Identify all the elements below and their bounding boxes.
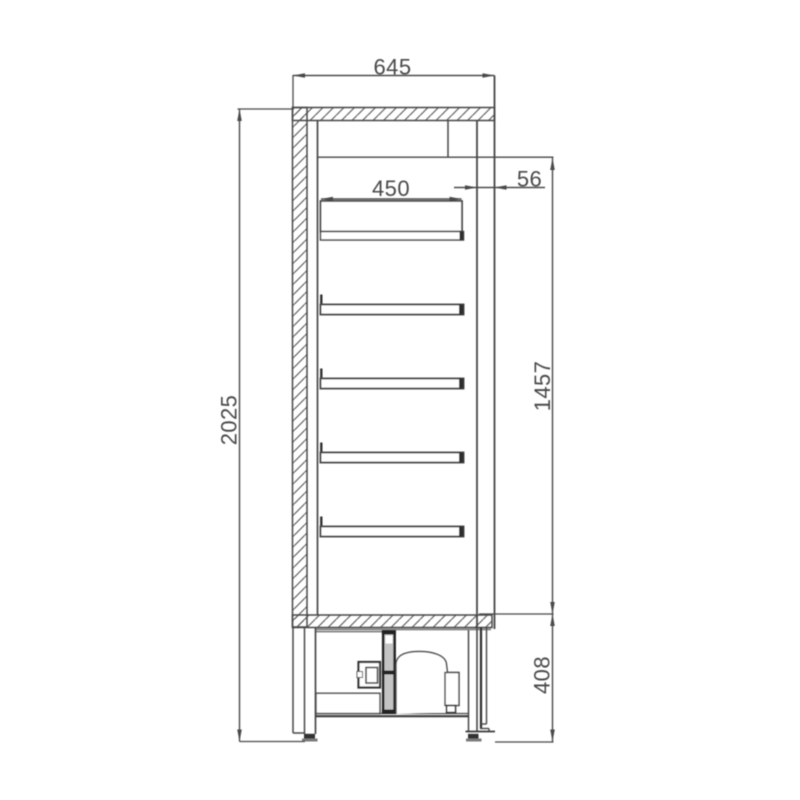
svg-text:1457: 1457 <box>530 361 555 412</box>
svg-text:56: 56 <box>517 167 542 192</box>
svg-text:408: 408 <box>530 656 555 694</box>
svg-text:450: 450 <box>372 176 410 201</box>
svg-text:645: 645 <box>374 55 412 80</box>
svg-text:2025: 2025 <box>217 395 242 446</box>
